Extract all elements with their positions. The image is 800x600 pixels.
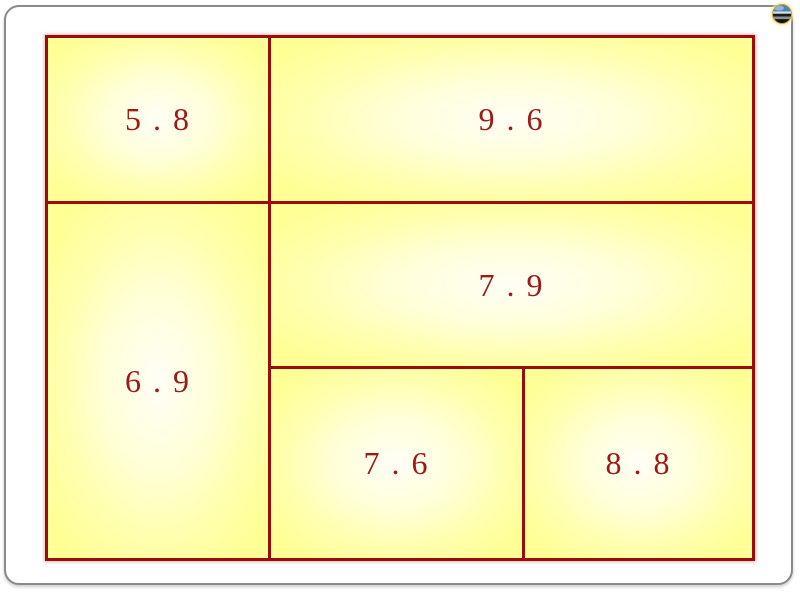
number-grid: 5 . 8 9 . 6 6 . 9 7 . 9 7 . 6 8 . 8 xyxy=(45,35,755,561)
grid-cell-top-left: 5 . 8 xyxy=(48,38,268,201)
grid-cell-middle-left: 6 . 9 xyxy=(48,204,268,558)
cell-value: 7 . 9 xyxy=(479,267,545,304)
nav-sphere-button[interactable] xyxy=(768,1,796,29)
cell-value: 6 . 9 xyxy=(125,363,191,400)
cell-value: 5 . 8 xyxy=(125,101,191,138)
cell-value: 9 . 6 xyxy=(479,101,545,138)
cell-value: 8 . 8 xyxy=(606,445,672,482)
grid-cell-top-right: 9 . 6 xyxy=(271,38,752,201)
grid-cell-bottom-right: 8 . 8 xyxy=(525,369,752,558)
grid-cell-bottom-center: 7 . 6 xyxy=(271,369,522,558)
slide-stage: 5 . 8 9 . 6 6 . 9 7 . 9 7 . 6 8 . 8 xyxy=(0,0,800,600)
striped-sphere-icon xyxy=(768,1,796,29)
cell-value: 7 . 6 xyxy=(364,445,430,482)
grid-cell-middle-right: 7 . 9 xyxy=(271,204,752,366)
